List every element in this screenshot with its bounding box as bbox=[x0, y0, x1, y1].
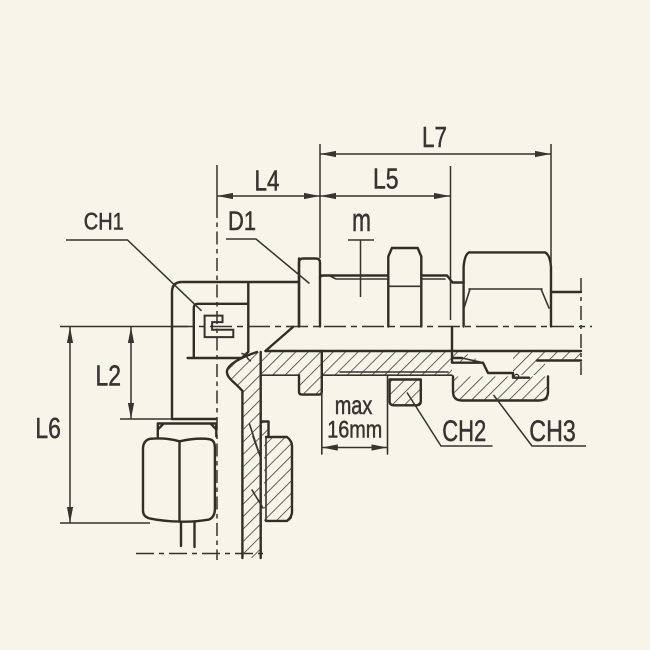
svg-text:CH1: CH1 bbox=[84, 209, 124, 236]
svg-text:L5: L5 bbox=[373, 164, 399, 196]
svg-text:CH2: CH2 bbox=[442, 415, 486, 448]
svg-text:L7: L7 bbox=[422, 122, 447, 154]
svg-text:L4: L4 bbox=[255, 166, 280, 198]
svg-text:L2: L2 bbox=[96, 361, 122, 393]
svg-text:D1: D1 bbox=[228, 206, 256, 236]
svg-text:m: m bbox=[352, 202, 371, 238]
svg-text:L6: L6 bbox=[35, 413, 61, 445]
svg-text:16mm: 16mm bbox=[327, 417, 382, 444]
svg-text:CH3: CH3 bbox=[529, 415, 576, 448]
svg-text:max: max bbox=[335, 390, 373, 420]
